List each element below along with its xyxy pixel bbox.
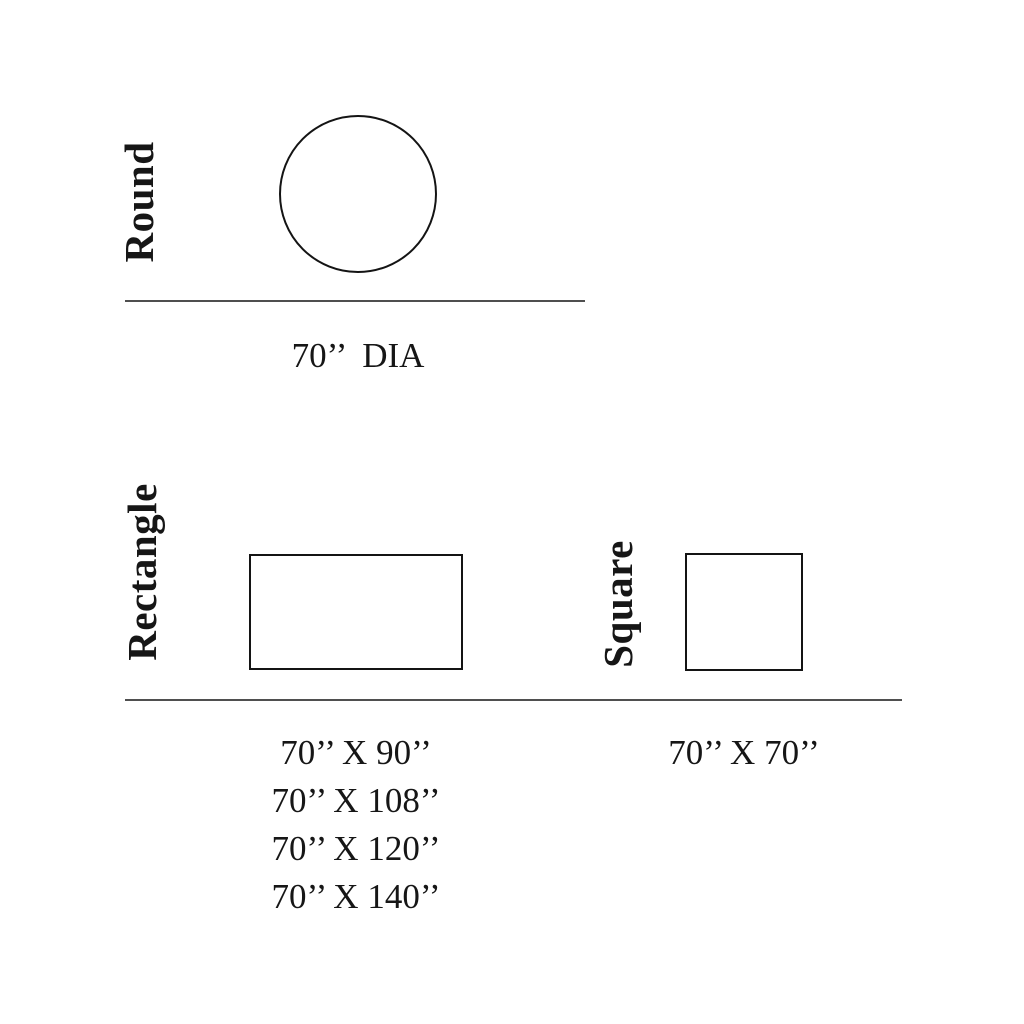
- square-size-text: 70’’ X 70’’: [668, 733, 820, 773]
- rectangle-shape: [249, 554, 463, 670]
- square-section-label: Square: [594, 540, 642, 668]
- round-circle-shape: [279, 115, 437, 273]
- rectangle-section-label: Rectangle: [118, 483, 166, 661]
- rectangle-size-item: 70’’ X 108’’: [271, 777, 440, 825]
- round-size-text: 70’’ DIA: [292, 336, 425, 376]
- round-divider-rule: [125, 300, 585, 302]
- square-shape: [685, 553, 803, 671]
- bottom-divider-rule: [125, 699, 902, 701]
- rectangle-size-item: 70’’ X 140’’: [271, 873, 440, 921]
- rectangle-size-item: 70’’ X 90’’: [271, 729, 440, 777]
- size-diagram: Round 70’’ DIA Rectangle Square 70’’ X 9…: [0, 0, 1024, 1024]
- round-section-label: Round: [115, 141, 163, 262]
- rectangle-size-item: 70’’ X 120’’: [271, 825, 440, 873]
- rectangle-size-list: 70’’ X 90’’ 70’’ X 108’’ 70’’ X 120’’ 70…: [271, 729, 440, 921]
